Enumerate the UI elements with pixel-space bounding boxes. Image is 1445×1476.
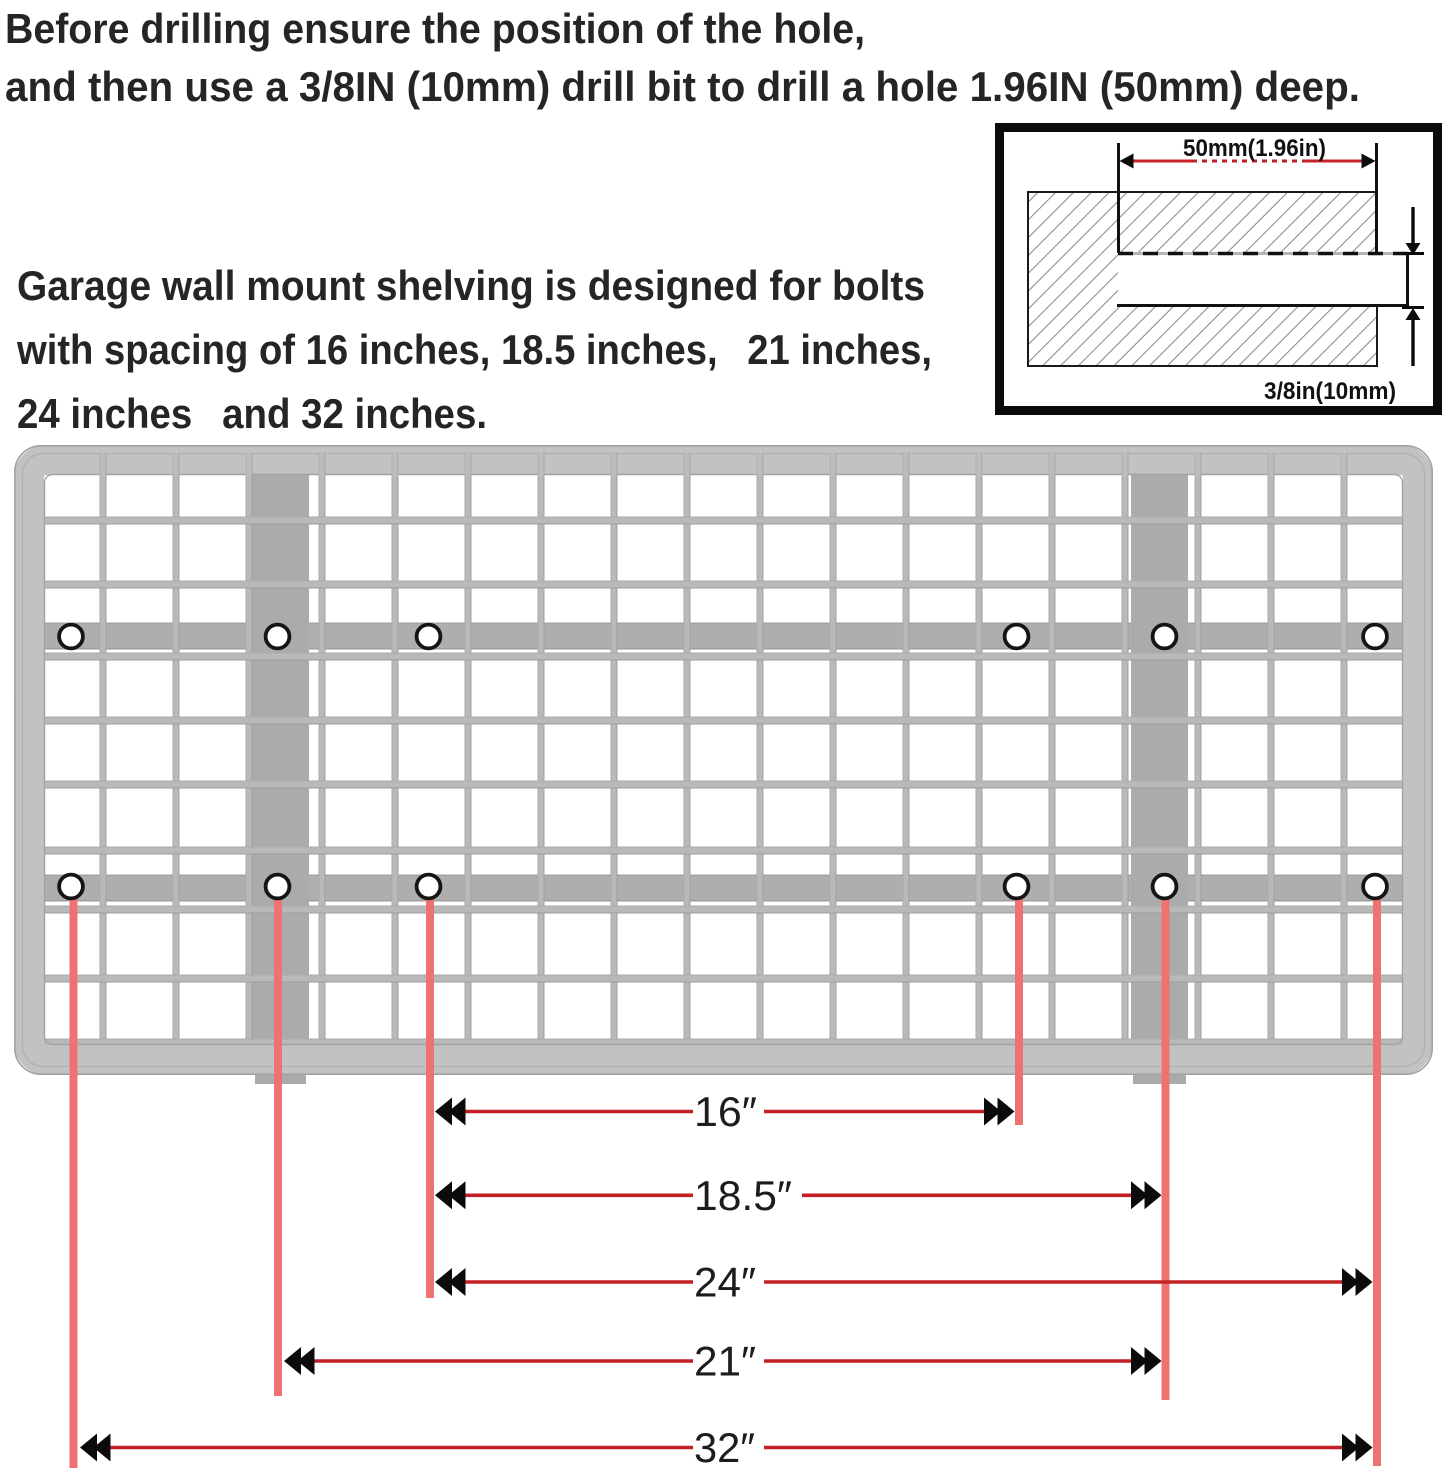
svg-text:24 inches and 32 inches.: 24 inches and 32 inches. (17, 390, 487, 437)
svg-text:with spacing of 16 inches, 18.: with spacing of 16 inches, 18.5 inches, … (16, 326, 932, 373)
svg-text:16″: 16″ (694, 1088, 757, 1135)
svg-text:50mm(1.96in): 50mm(1.96in) (1183, 135, 1326, 162)
svg-text:3/8in(10mm): 3/8in(10mm) (1264, 378, 1396, 405)
svg-text:21″: 21″ (694, 1338, 756, 1385)
svg-text:18.5″: 18.5″ (694, 1172, 792, 1219)
svg-text:Before drilling ensure the pos: Before drilling ensure the position of t… (5, 5, 865, 52)
svg-text:and then use a 3/8IN (10mm) dr: and then use a 3/8IN (10mm) drill bit to… (5, 63, 1360, 110)
svg-text:Garage wall mount shelving is: Garage wall mount shelving is designed f… (17, 262, 925, 309)
svg-text:24″: 24″ (694, 1259, 756, 1306)
svg-text:32″: 32″ (694, 1424, 755, 1471)
